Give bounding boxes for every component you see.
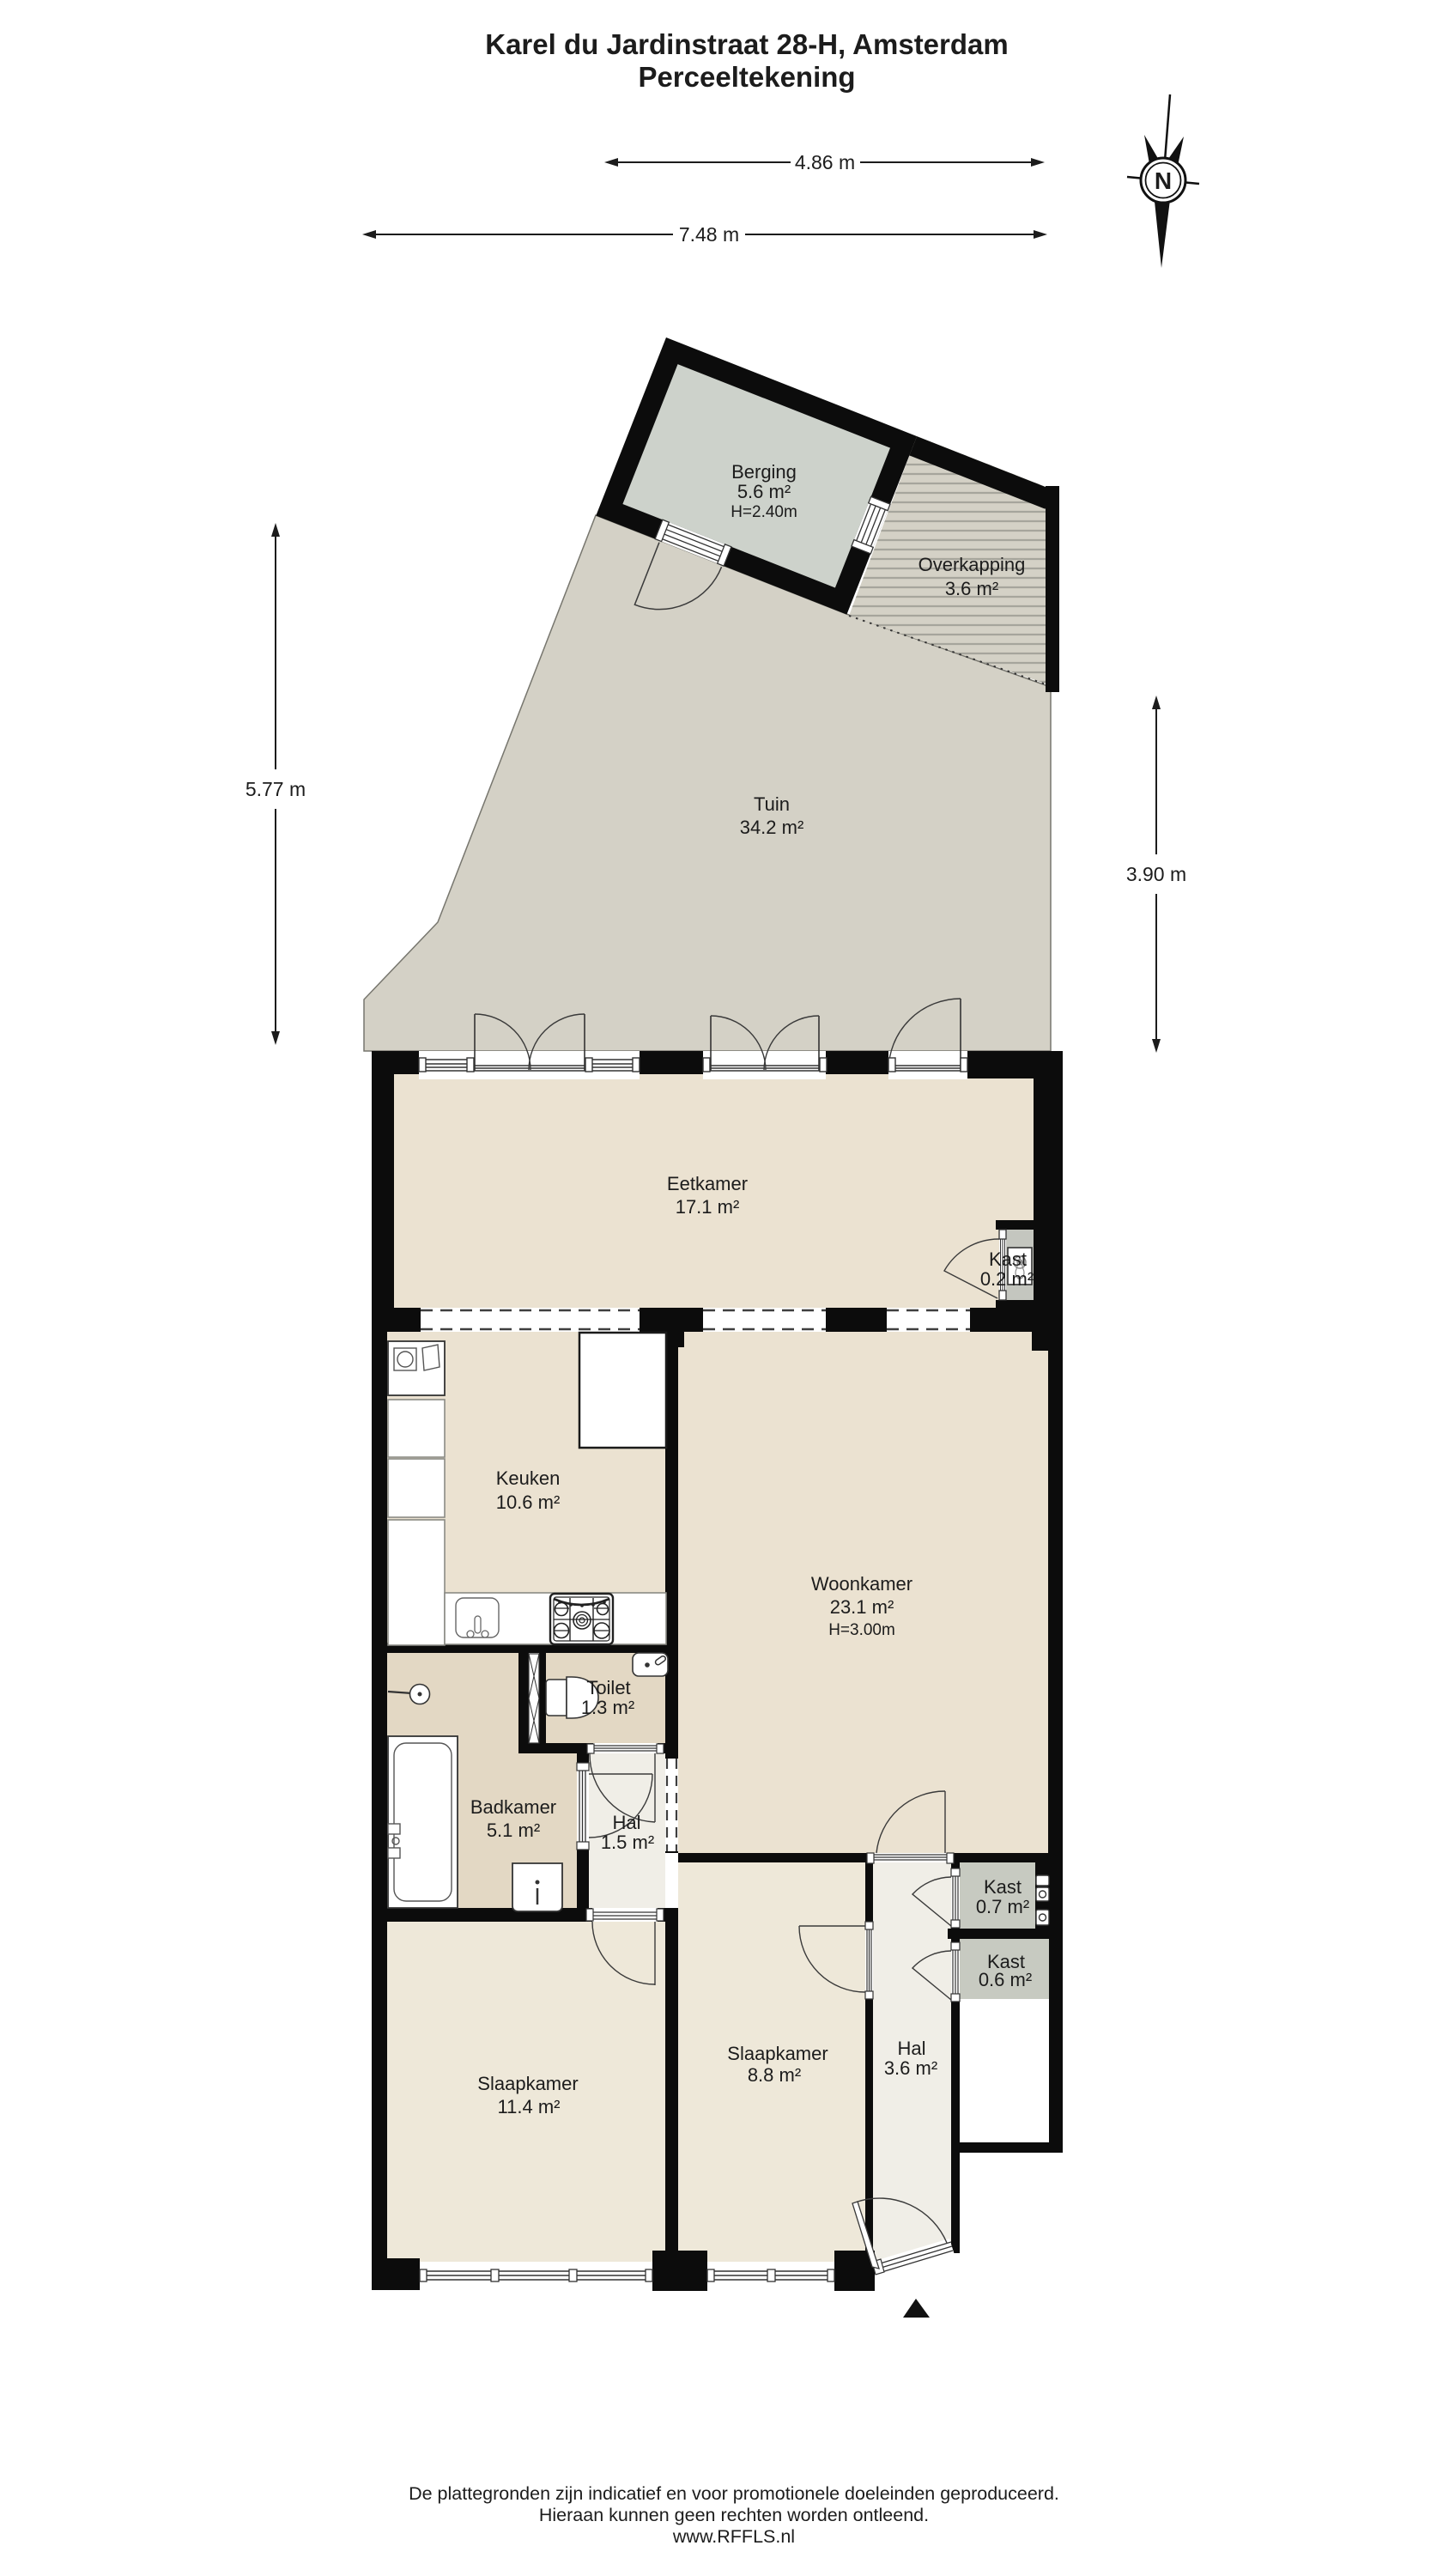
- svg-text:0.2 m²: 0.2 m²: [980, 1268, 1034, 1290]
- svg-text:H=3.00m: H=3.00m: [828, 1621, 895, 1639]
- svg-text:Overkapping: Overkapping: [919, 554, 1026, 575]
- svg-text:Perceeltekening: Perceeltekening: [638, 61, 855, 93]
- svg-text:3.6 m²: 3.6 m²: [884, 2057, 937, 2079]
- svg-text:34.2 m²: 34.2 m²: [740, 817, 804, 838]
- svg-text:Keuken: Keuken: [496, 1467, 561, 1489]
- svg-text:De plattegronden zijn indicati: De plattegronden zijn indicatief en voor…: [409, 2483, 1059, 2504]
- svg-text:3.6 m²: 3.6 m²: [945, 578, 998, 599]
- svg-text:Slaapkamer: Slaapkamer: [727, 2043, 828, 2064]
- svg-text:Karel du Jardinstraat 28-H, Am: Karel du Jardinstraat 28-H, Amsterdam: [485, 28, 1009, 60]
- svg-text:Hal: Hal: [897, 2038, 925, 2059]
- svg-text:Hal: Hal: [612, 1812, 640, 1833]
- svg-text:Berging: Berging: [731, 461, 797, 483]
- svg-text:H=2.40m: H=2.40m: [731, 503, 797, 521]
- svg-text:17.1 m²: 17.1 m²: [676, 1196, 740, 1218]
- svg-text:8.8 m²: 8.8 m²: [748, 2064, 801, 2086]
- svg-text:11.4 m²: 11.4 m²: [498, 2096, 561, 2117]
- svg-text:Toilet: Toilet: [586, 1677, 630, 1698]
- svg-text:Kast: Kast: [989, 1249, 1027, 1270]
- svg-text:Slaapkamer: Slaapkamer: [477, 2073, 578, 2094]
- svg-text:www.RFFLS.nl: www.RFFLS.nl: [672, 2526, 795, 2547]
- svg-text:5.77 m: 5.77 m: [246, 778, 306, 800]
- svg-text:3.90 m: 3.90 m: [1126, 863, 1186, 885]
- svg-text:0.7 m²: 0.7 m²: [976, 1896, 1029, 1917]
- svg-text:1.3 m²: 1.3 m²: [581, 1697, 634, 1718]
- svg-text:0.6 m²: 0.6 m²: [979, 1969, 1032, 1990]
- svg-text:Kast: Kast: [984, 1876, 1022, 1898]
- svg-text:7.48 m: 7.48 m: [679, 223, 739, 246]
- svg-text:Badkamer: Badkamer: [470, 1796, 556, 1818]
- svg-text:23.1 m²: 23.1 m²: [830, 1596, 894, 1618]
- svg-text:1.5 m²: 1.5 m²: [601, 1832, 654, 1853]
- svg-text:Woonkamer: Woonkamer: [811, 1573, 912, 1595]
- svg-text:5.1 m²: 5.1 m²: [487, 1820, 540, 1841]
- svg-text:10.6 m²: 10.6 m²: [496, 1492, 561, 1513]
- svg-text:Eetkamer: Eetkamer: [667, 1173, 748, 1194]
- svg-text:N: N: [1155, 167, 1172, 194]
- svg-text:Hieraan kunnen geen rechten wo: Hieraan kunnen geen rechten worden ontle…: [539, 2505, 929, 2525]
- svg-text:4.86 m: 4.86 m: [795, 151, 855, 173]
- svg-text:5.6 m²: 5.6 m²: [737, 481, 791, 502]
- svg-text:Tuin: Tuin: [754, 793, 790, 815]
